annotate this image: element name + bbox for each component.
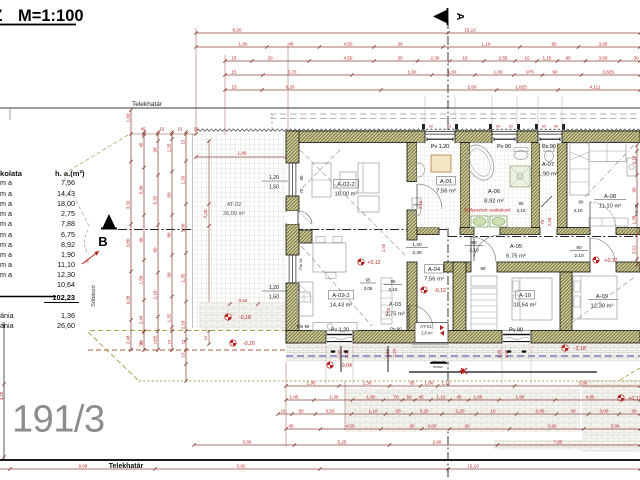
svg-text:1,10: 1,10 — [369, 408, 378, 413]
svg-text:3,50: 3,50 — [326, 408, 335, 413]
svg-text:3,32: 3,32 — [125, 200, 130, 209]
svg-text:26,60: 26,60 — [57, 321, 75, 330]
svg-text:15: 15 — [203, 335, 208, 340]
svg-text:90: 90 — [565, 55, 571, 60]
svg-text:35: 35 — [152, 335, 157, 341]
svg-text:A-01: A-01 — [440, 179, 452, 185]
svg-text:1,50: 1,50 — [138, 275, 143, 284]
svg-text:3,00: 3,00 — [599, 41, 608, 46]
svg-text:15: 15 — [231, 55, 237, 60]
svg-text:45: 45 — [418, 394, 424, 399]
svg-text:10: 10 — [462, 55, 468, 60]
svg-text:70: 70 — [393, 394, 399, 399]
svg-text:90: 90 — [480, 266, 486, 271]
svg-text:m a: m a — [0, 230, 12, 239]
svg-text:2,10: 2,10 — [389, 287, 398, 292]
svg-text:3,82: 3,82 — [237, 463, 246, 468]
svg-text:90: 90 — [576, 245, 582, 251]
svg-text:m a: m a — [0, 250, 12, 259]
svg-text:6,75: 6,75 — [61, 230, 75, 239]
svg-text:2,15: 2,15 — [418, 200, 423, 209]
svg-text:2,30: 2,30 — [431, 55, 440, 60]
svg-text:1,90: 1,90 — [61, 250, 75, 259]
svg-text:3,80: 3,80 — [548, 423, 557, 428]
svg-text:2,60: 2,60 — [433, 439, 442, 444]
svg-text:5,32: 5,32 — [152, 195, 157, 204]
svg-text:7,88: 7,88 — [61, 219, 75, 228]
svg-text:95: 95 — [366, 278, 371, 283]
svg-text:15: 15 — [153, 339, 158, 344]
svg-text:7,85: 7,85 — [554, 439, 563, 444]
svg-text:2,6 m²: 2,6 m² — [421, 331, 433, 336]
svg-text:14,43 m²: 14,43 m² — [330, 303, 353, 309]
svg-text:12,10: 12,10 — [467, 463, 479, 468]
svg-text:50: 50 — [395, 408, 401, 413]
svg-text:1,30: 1,30 — [330, 394, 339, 399]
svg-text:m a: m a — [0, 270, 12, 279]
svg-text:m a: m a — [0, 209, 12, 218]
svg-text:1,20: 1,20 — [497, 349, 502, 358]
svg-text:50: 50 — [298, 408, 304, 413]
svg-text:2,44: 2,44 — [138, 315, 143, 324]
svg-text:90: 90 — [152, 147, 157, 153]
svg-text:1,80: 1,80 — [238, 151, 247, 156]
svg-text:9,08: 9,08 — [79, 463, 88, 468]
svg-text:15: 15 — [180, 352, 185, 358]
svg-text:80: 80 — [166, 232, 171, 238]
svg-text:-0,20: -0,20 — [243, 341, 255, 347]
svg-text:5,80: 5,80 — [536, 408, 545, 413]
svg-text:2,10: 2,10 — [574, 208, 583, 213]
svg-text:4,50: 4,50 — [346, 423, 355, 428]
svg-text:-2,18: -2,18 — [574, 346, 586, 352]
svg-text:15: 15 — [160, 127, 165, 132]
svg-text:1,20: 1,20 — [269, 285, 279, 291]
svg-text:7,56: 7,56 — [61, 178, 75, 187]
svg-text:1,00: 1,00 — [448, 69, 457, 74]
svg-text:18,00: 18,00 — [57, 199, 75, 208]
svg-text:2,18: 2,18 — [631, 155, 636, 164]
svg-text:15: 15 — [139, 339, 144, 344]
svg-text:3,80: 3,80 — [125, 238, 130, 247]
svg-text:-0,04: -0,04 — [340, 363, 352, 369]
svg-text:20: 20 — [267, 55, 273, 60]
svg-text:2,49: 2,49 — [547, 217, 552, 226]
svg-text:AT-01: AT-01 — [420, 324, 432, 329]
svg-text:90: 90 — [471, 240, 477, 246]
svg-text:m a: m a — [0, 199, 12, 208]
svg-text:90: 90 — [542, 125, 546, 129]
svg-text:A-04: A-04 — [428, 267, 441, 273]
svg-text:60: 60 — [152, 247, 157, 253]
svg-text:1,00: 1,00 — [408, 69, 417, 74]
svg-text:45: 45 — [141, 127, 146, 132]
svg-text:1,80: 1,80 — [239, 41, 248, 46]
svg-text:0,64: 0,64 — [239, 298, 248, 303]
svg-text:60: 60 — [166, 192, 171, 198]
svg-text:3,51: 3,51 — [631, 245, 636, 254]
svg-text:-0,18: -0,18 — [239, 315, 251, 321]
svg-text:8,92 m²: 8,92 m² — [484, 199, 504, 205]
svg-text:7,56 m²: 7,56 m² — [424, 277, 444, 283]
svg-text:1,20: 1,20 — [392, 348, 397, 357]
svg-text:1,20: 1,20 — [412, 242, 422, 248]
svg-text:A-06: A-06 — [488, 189, 500, 195]
svg-text:4,111: 4,111 — [590, 84, 601, 89]
svg-text:3,00: 3,00 — [428, 423, 437, 428]
svg-text:1,45: 1,45 — [290, 394, 299, 399]
svg-text:60: 60 — [509, 125, 513, 129]
svg-text:Pm 90: Pm 90 — [297, 324, 310, 329]
svg-text:Pm 91: Pm 91 — [298, 257, 303, 269]
svg-text:60: 60 — [554, 125, 558, 129]
svg-text:2,55: 2,55 — [499, 55, 508, 60]
svg-text:2,48: 2,48 — [125, 335, 130, 344]
svg-text:14,43: 14,43 — [57, 189, 75, 198]
svg-text:191/3: 191/3 — [12, 399, 105, 441]
svg-text:10,64: 10,64 — [57, 280, 75, 289]
svg-text:975: 975 — [526, 69, 534, 74]
svg-text:5,25: 5,25 — [338, 439, 347, 444]
svg-text:ánia: ánia — [0, 321, 14, 330]
svg-text:A-07: A-07 — [542, 162, 554, 168]
svg-text:A-09: A-09 — [596, 294, 608, 300]
svg-text:90: 90 — [552, 69, 558, 74]
svg-text:3,825: 3,825 — [602, 69, 614, 74]
svg-text:2,10: 2,10 — [152, 290, 157, 299]
svg-text:1,32: 1,32 — [166, 313, 171, 322]
svg-text:2,30: 2,30 — [363, 380, 372, 385]
svg-text:1,10: 1,10 — [442, 380, 451, 385]
svg-text:15: 15 — [181, 339, 186, 344]
svg-text:90: 90 — [496, 125, 500, 129]
svg-text:m a: m a — [0, 219, 12, 228]
svg-text:A-10: A-10 — [519, 293, 531, 299]
svg-text:45: 45 — [288, 423, 294, 428]
svg-text:9,38: 9,38 — [125, 295, 130, 304]
svg-text:M=1:100: M=1:100 — [18, 7, 84, 25]
svg-text:Telekhatár: Telekhatár — [132, 101, 163, 108]
svg-text:10,64 m²: 10,64 m² — [514, 303, 537, 309]
svg-text:90: 90 — [551, 41, 557, 46]
svg-text:1,50: 1,50 — [504, 349, 509, 358]
svg-text:6,75 m²: 6,75 m² — [506, 254, 526, 260]
svg-text:m a: m a — [0, 178, 12, 187]
svg-text:1,55: 1,55 — [381, 243, 386, 252]
svg-text:Pn 90: Pn 90 — [390, 327, 402, 332]
svg-text:+0,12: +0,12 — [367, 260, 380, 266]
svg-text:Pv 90: Pv 90 — [509, 328, 523, 334]
svg-text:2,75: 2,75 — [61, 209, 75, 218]
svg-text:5,60: 5,60 — [579, 380, 588, 385]
svg-text:1,80: 1,80 — [516, 394, 525, 399]
svg-text:2,40: 2,40 — [412, 250, 422, 256]
svg-text:90: 90 — [429, 125, 433, 129]
svg-text:Z: Z — [0, 6, 2, 25]
svg-text:26,00 m²: 26,00 m² — [223, 211, 245, 217]
svg-text:kolata: kolata — [0, 169, 23, 178]
svg-text:1,20: 1,20 — [344, 349, 349, 358]
svg-text:2,10: 2,10 — [469, 248, 479, 254]
svg-text:4,50: 4,50 — [344, 41, 353, 46]
svg-text:1,50: 1,50 — [269, 185, 279, 191]
svg-text:2,18: 2,18 — [180, 320, 185, 329]
svg-text:A-08: A-08 — [604, 194, 616, 200]
svg-text:15: 15 — [180, 139, 185, 145]
svg-text:90: 90 — [390, 279, 396, 284]
svg-text:1,25: 1,25 — [166, 143, 171, 152]
svg-text:1,15: 1,15 — [543, 55, 552, 60]
svg-text:30: 30 — [409, 423, 415, 428]
svg-text:7,20: 7,20 — [203, 209, 208, 218]
svg-text:90: 90 — [519, 201, 524, 206]
svg-text:15: 15 — [167, 339, 172, 344]
svg-text:10: 10 — [524, 55, 530, 60]
svg-text:8,92: 8,92 — [61, 240, 75, 249]
svg-text:+0,12: +0,12 — [604, 258, 617, 264]
svg-text:15: 15 — [231, 69, 237, 74]
svg-text:15,10: 15,10 — [464, 27, 476, 32]
svg-text:45: 45 — [288, 41, 294, 46]
svg-text:3,20: 3,20 — [420, 408, 429, 413]
svg-text:Süllyesztett csatlakozó: Süllyesztett csatlakozó — [464, 208, 511, 213]
svg-text:3,00: 3,00 — [599, 55, 608, 60]
svg-text:1,90 m²: 1,90 m² — [538, 172, 558, 178]
svg-text:2,10: 2,10 — [574, 253, 584, 259]
svg-text:11,10: 11,10 — [58, 260, 75, 269]
svg-text:1,36: 1,36 — [61, 311, 75, 320]
svg-text:Sóbászó: Sóbászó — [91, 285, 97, 306]
svg-text:60: 60 — [447, 125, 451, 129]
svg-text:15: 15 — [178, 127, 183, 132]
svg-text:Pv 90: Pv 90 — [497, 144, 511, 150]
svg-text:1,38: 1,38 — [631, 215, 636, 224]
svg-text:7,56 m²: 7,56 m² — [436, 189, 456, 195]
svg-text:15: 15 — [231, 84, 237, 89]
svg-text:70: 70 — [299, 188, 304, 193]
svg-text:A-05: A-05 — [510, 244, 522, 250]
svg-text:2,10: 2,10 — [517, 208, 526, 213]
svg-text:15: 15 — [194, 127, 199, 132]
svg-text:1,35: 1,35 — [180, 273, 185, 282]
svg-text:1,00: 1,00 — [494, 69, 503, 74]
svg-text:A-02-1: A-02-1 — [332, 293, 349, 299]
svg-text:1,10: 1,10 — [482, 41, 491, 46]
svg-text:45: 45 — [456, 394, 462, 399]
svg-text:2,05: 2,05 — [364, 286, 373, 291]
svg-text:30: 30 — [570, 408, 576, 413]
svg-text:90: 90 — [631, 187, 636, 193]
svg-text:m a: m a — [0, 189, 12, 198]
svg-text:1,95: 1,95 — [307, 380, 316, 385]
svg-text:4,85: 4,85 — [586, 394, 595, 399]
svg-text:4,50: 4,50 — [344, 55, 353, 60]
svg-text:10: 10 — [490, 408, 496, 413]
svg-text:85: 85 — [409, 380, 415, 385]
svg-text:A: A — [454, 13, 466, 21]
svg-text:-0,12: -0,12 — [434, 288, 446, 294]
svg-text:8,20: 8,20 — [233, 27, 242, 32]
svg-text:m a: m a — [0, 260, 12, 269]
svg-text:30: 30 — [397, 41, 403, 46]
svg-text:90: 90 — [166, 272, 171, 278]
svg-text:12,30: 12,30 — [57, 270, 75, 279]
svg-text:Pv 1,20: Pv 1,20 — [431, 144, 449, 150]
svg-text:5,90: 5,90 — [180, 223, 185, 232]
svg-text:m a: m a — [0, 240, 12, 249]
svg-text:1,50: 1,50 — [269, 295, 279, 301]
svg-text:30: 30 — [397, 55, 403, 60]
svg-text:11,10 m²: 11,10 m² — [599, 204, 622, 210]
svg-text:3,00: 3,00 — [600, 408, 609, 413]
svg-text:1,20: 1,20 — [269, 175, 279, 181]
svg-text:2,05: 2,05 — [386, 307, 391, 316]
svg-text:1,60: 1,60 — [125, 113, 130, 122]
svg-text:90: 90 — [138, 237, 143, 243]
svg-text:1,80: 1,80 — [367, 394, 376, 399]
svg-text:AT-02: AT-02 — [227, 202, 242, 208]
svg-text:75: 75 — [540, 219, 545, 224]
svg-text:1,33: 1,33 — [180, 175, 185, 184]
svg-text:30: 30 — [631, 408, 637, 413]
svg-text:terasz: terasz — [433, 365, 443, 369]
svg-text:1,00: 1,00 — [425, 380, 434, 385]
svg-text:18,00 m²: 18,00 m² — [335, 192, 358, 198]
svg-text:90: 90 — [299, 175, 304, 180]
svg-text:15: 15 — [280, 408, 286, 413]
svg-text:1,825: 1,825 — [515, 84, 527, 89]
svg-text:30: 30 — [633, 55, 639, 60]
svg-text:1,66: 1,66 — [474, 394, 483, 399]
svg-text:2,60: 2,60 — [468, 84, 477, 89]
svg-text:3,00: 3,00 — [611, 423, 620, 428]
svg-text:5,70: 5,70 — [288, 69, 297, 74]
svg-text:6,20: 6,20 — [286, 84, 295, 89]
svg-text:B: B — [98, 234, 107, 249]
svg-text:ánia: ánia — [0, 311, 14, 320]
svg-text:1,10: 1,10 — [437, 394, 446, 399]
svg-text:4,20: 4,20 — [0, 391, 4, 400]
svg-text:2,20: 2,20 — [456, 408, 465, 413]
svg-text:45: 45 — [138, 142, 143, 148]
svg-text:102,23: 102,23 — [52, 293, 75, 302]
svg-text:90: 90 — [579, 200, 584, 205]
svg-text:30: 30 — [464, 423, 470, 428]
svg-text:3,80: 3,80 — [243, 439, 252, 444]
svg-text:50: 50 — [406, 394, 412, 399]
svg-text:5,30: 5,30 — [138, 185, 143, 194]
